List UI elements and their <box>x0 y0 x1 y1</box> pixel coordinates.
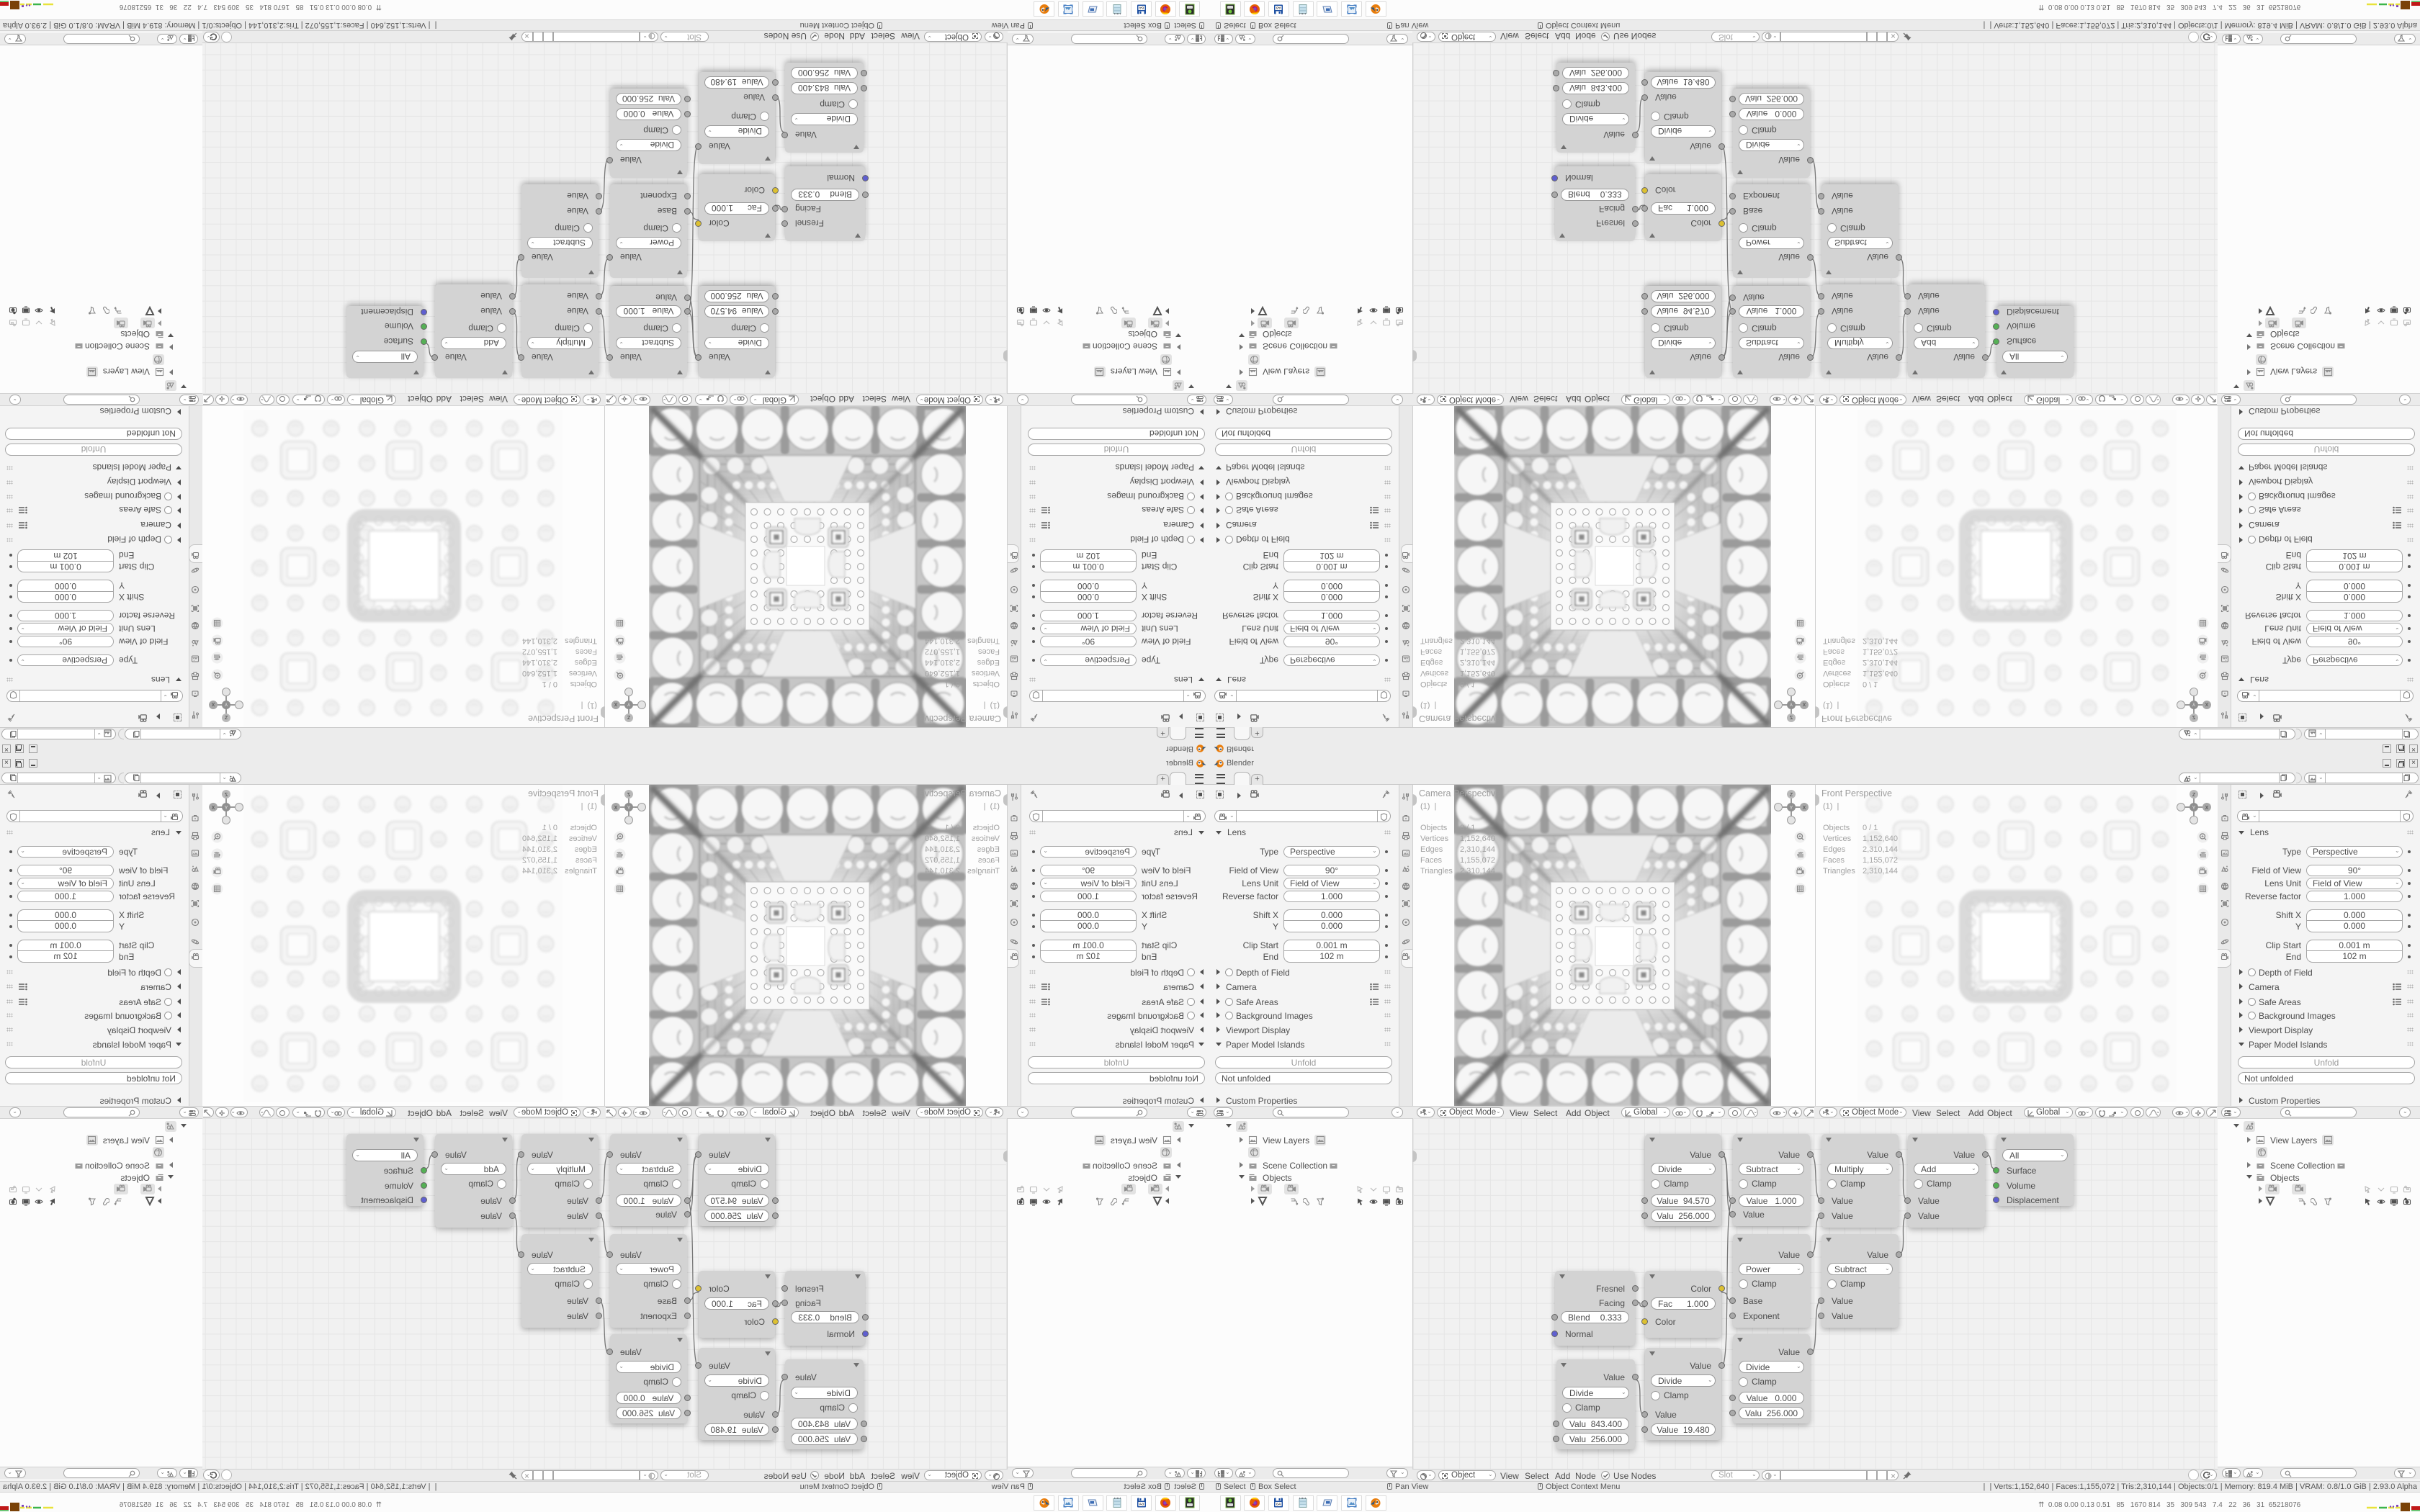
svg-text:X: X <box>614 701 617 706</box>
svg-text:Z: Z <box>1790 714 1793 719</box>
svg-text:Y: Y <box>627 806 630 811</box>
svg-text:X: X <box>211 806 215 811</box>
svg-text:Z: Z <box>627 714 630 719</box>
svg-text:64: 64 <box>1276 5 1281 9</box>
svg-text:Y: Y <box>627 701 630 706</box>
svg-text:Y: Y <box>1790 701 1793 706</box>
svg-text:Y: Y <box>2192 701 2196 706</box>
svg-text:X: X <box>2205 806 2209 811</box>
svg-text:X: X <box>211 701 215 706</box>
svg-text:Z: Z <box>2192 714 2196 719</box>
svg-text:Y: Y <box>224 806 228 811</box>
svg-text:64: 64 <box>1139 1503 1144 1507</box>
svg-text:64: 64 <box>1139 5 1144 9</box>
svg-text:X: X <box>1803 806 1806 811</box>
svg-text:Z: Z <box>224 714 228 719</box>
svg-text:Y: Y <box>224 701 228 706</box>
svg-text:Y: Y <box>2192 806 2196 811</box>
svg-text:64: 64 <box>1276 1503 1281 1507</box>
svg-text:X: X <box>1803 701 1806 706</box>
svg-text:Y: Y <box>1790 806 1793 811</box>
svg-text:Z: Z <box>1790 793 1793 798</box>
svg-text:X: X <box>2205 701 2209 706</box>
svg-text:Z: Z <box>627 793 630 798</box>
svg-text:X: X <box>614 806 617 811</box>
svg-text:Z: Z <box>224 793 228 798</box>
svg-text:Z: Z <box>2192 793 2196 798</box>
